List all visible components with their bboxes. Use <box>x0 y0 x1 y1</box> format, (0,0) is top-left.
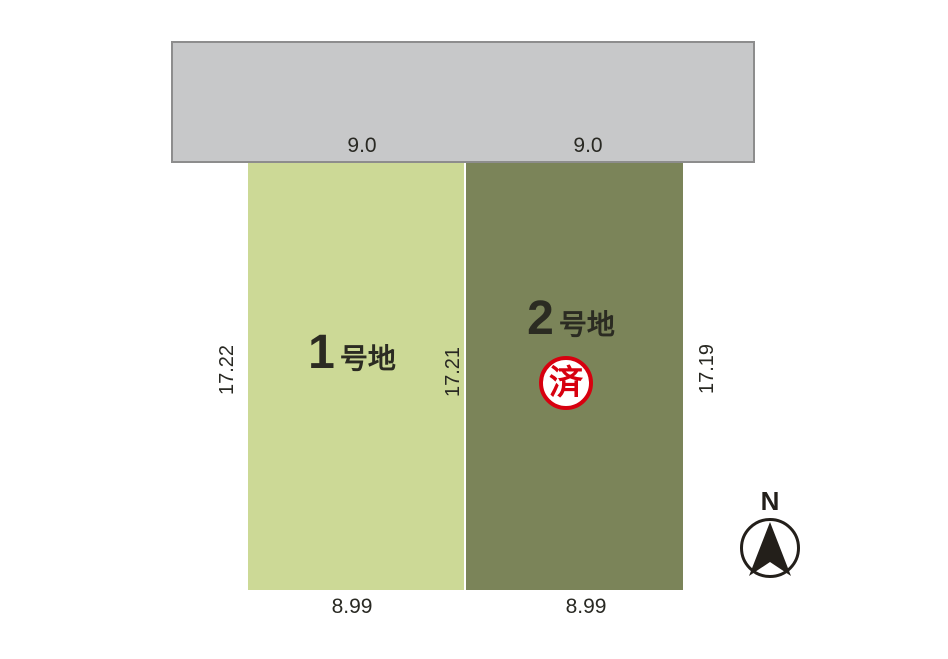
lot-1-bottom-dimension: 8.99 <box>302 595 402 619</box>
lot-1-top-dimension: 9.0 <box>312 134 412 158</box>
lot-2-number: 2 <box>527 292 555 345</box>
lot-layout-diagram: 9.0 9.0 8.99 8.99 17.22 17.21 17.19 1号地 … <box>0 0 948 659</box>
lot-2-right-side-dimension: 17.19 <box>696 329 718 409</box>
lot-1-label: 1号地 <box>252 325 452 380</box>
lot-1-suffix: 号地 <box>340 343 396 374</box>
lot-2-top-dimension: 9.0 <box>538 134 638 158</box>
lot-1-left-side-dimension: 17.22 <box>216 330 238 410</box>
lot-2-label: 2号地 <box>471 291 671 346</box>
lot-2-suffix: 号地 <box>559 309 615 340</box>
lot-2-bottom-dimension: 8.99 <box>536 595 636 619</box>
lot-1-number: 1 <box>308 326 336 379</box>
road-area <box>171 41 755 163</box>
sold-stamp: 済 <box>539 356 593 410</box>
north-arrow-icon <box>740 518 800 578</box>
compass-north-label: N <box>740 487 800 515</box>
sold-stamp-character: 済 <box>549 366 583 400</box>
